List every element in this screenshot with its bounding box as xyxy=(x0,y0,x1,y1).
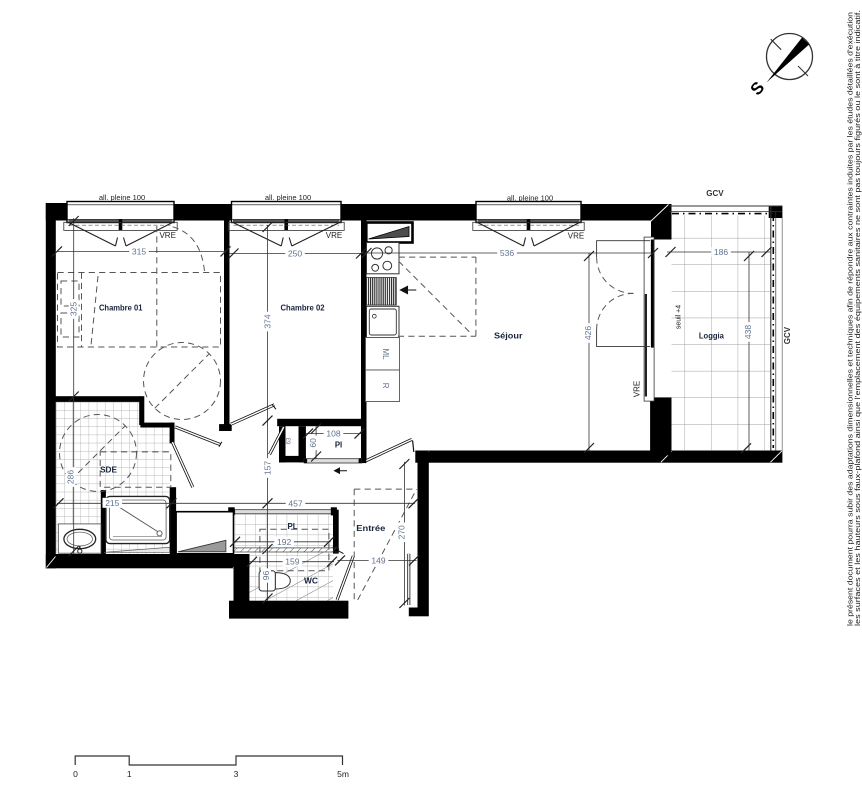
svg-text:WC: WC xyxy=(304,576,318,586)
svg-text:VRE: VRE xyxy=(568,232,584,241)
svg-text:GCV: GCV xyxy=(783,326,792,344)
svg-text:Entrée: Entrée xyxy=(356,523,385,533)
svg-text:315: 315 xyxy=(132,246,146,256)
svg-text:SDE: SDE xyxy=(100,466,117,475)
svg-text:286: 286 xyxy=(66,470,76,484)
svg-text:63: 63 xyxy=(287,437,293,444)
svg-text:438: 438 xyxy=(743,325,753,339)
svg-text:60: 60 xyxy=(308,438,318,448)
svg-text:les surfaces et les hauteurs s: les surfaces et les hauteurs sous faux-p… xyxy=(853,10,862,626)
svg-text:ML: ML xyxy=(381,348,390,360)
svg-text:186: 186 xyxy=(714,247,728,257)
svg-text:all. pleine 100: all. pleine 100 xyxy=(265,193,311,202)
svg-text:Chambre 02: Chambre 02 xyxy=(281,302,325,312)
svg-text:536: 536 xyxy=(500,248,514,258)
svg-text:VRE: VRE xyxy=(159,231,175,240)
svg-text:VRE: VRE xyxy=(326,231,342,240)
svg-text:5m: 5m xyxy=(337,769,349,779)
svg-text:Séjour: Séjour xyxy=(494,330,523,340)
svg-text:GCV: GCV xyxy=(706,189,724,198)
svg-text:1: 1 xyxy=(127,769,132,779)
svg-text:192: 192 xyxy=(277,537,291,547)
svg-text:96: 96 xyxy=(261,571,271,581)
svg-text:159: 159 xyxy=(285,557,299,567)
svg-text:R: R xyxy=(381,383,390,389)
svg-text:325: 325 xyxy=(69,302,79,316)
svg-text:VRE: VRE xyxy=(633,381,642,397)
svg-text:270: 270 xyxy=(397,525,407,539)
svg-text:215: 215 xyxy=(105,498,119,508)
svg-text:374: 374 xyxy=(263,314,273,328)
svg-text:108: 108 xyxy=(326,429,340,439)
svg-text:seuil +4: seuil +4 xyxy=(676,305,683,329)
svg-text:3: 3 xyxy=(234,769,239,779)
svg-text:157: 157 xyxy=(263,461,273,475)
svg-text:149: 149 xyxy=(371,555,385,565)
svg-text:all. pleine 100: all. pleine 100 xyxy=(99,193,145,202)
svg-text:426: 426 xyxy=(583,326,593,340)
svg-text:457: 457 xyxy=(288,498,302,508)
svg-text:Chambre 01: Chambre 01 xyxy=(99,302,143,312)
svg-text:all. pleine 100: all. pleine 100 xyxy=(507,194,553,203)
svg-text:0: 0 xyxy=(73,769,78,779)
svg-text:250: 250 xyxy=(288,249,302,259)
svg-text:Loggia: Loggia xyxy=(699,331,724,341)
svg-text:PI: PI xyxy=(335,440,342,449)
